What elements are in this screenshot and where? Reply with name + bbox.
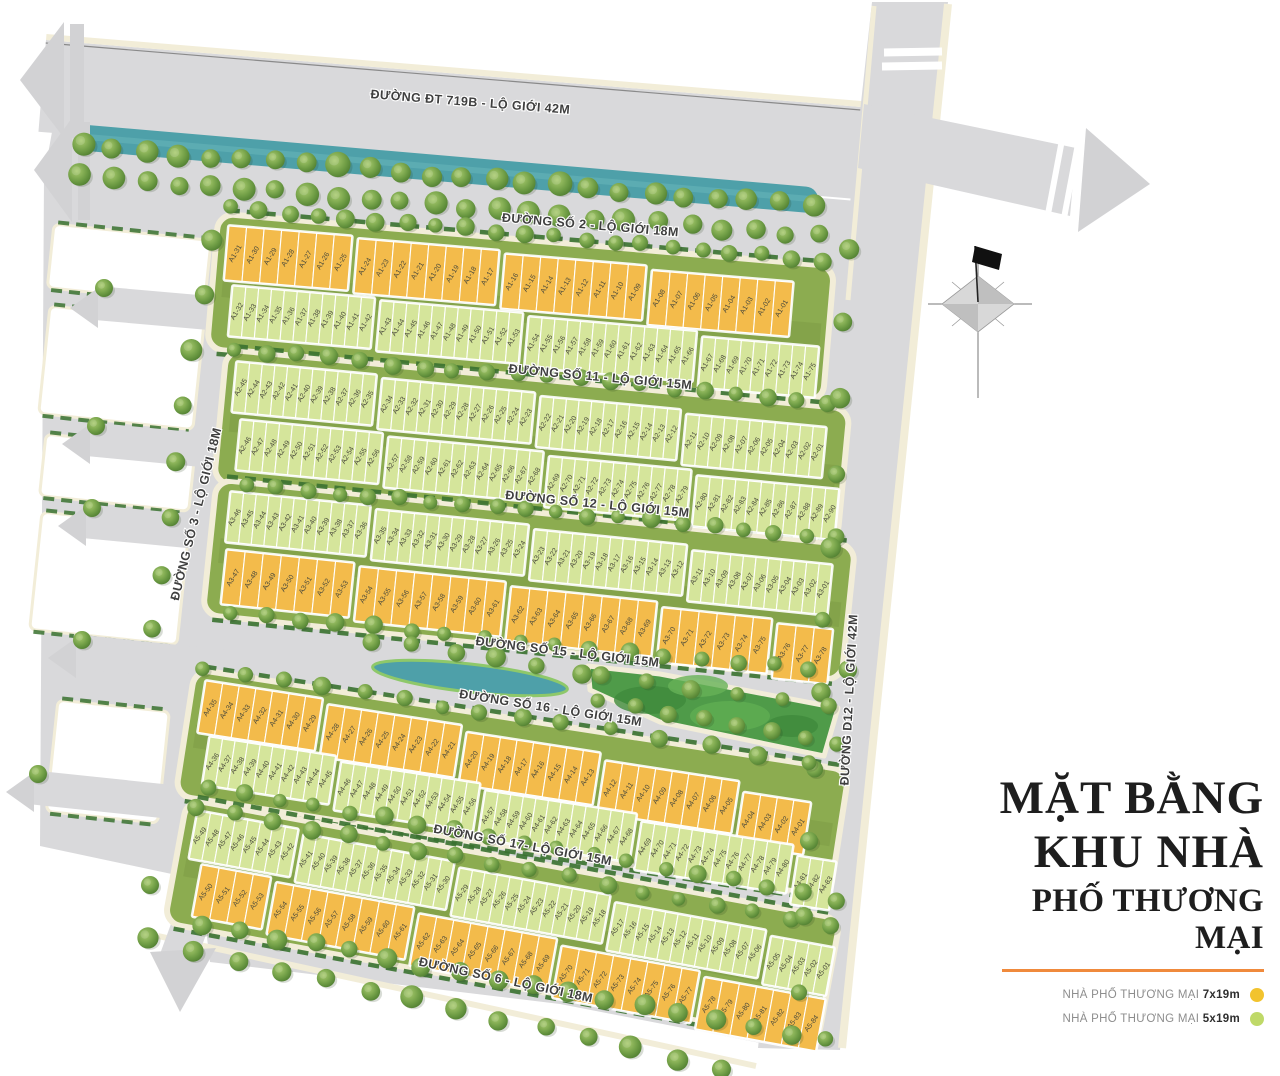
map-shape: [300, 155, 308, 163]
map-shape: [795, 883, 812, 900]
map-shape: [285, 208, 292, 215]
map-shape: [797, 910, 804, 917]
map-shape: [391, 489, 407, 505]
map-shape: [746, 220, 766, 240]
map-shape: [711, 192, 719, 200]
map-shape: [261, 348, 268, 355]
map-shape: [739, 191, 748, 200]
map-shape: [387, 359, 394, 366]
map-shape: [313, 210, 319, 216]
map-shape: [104, 141, 112, 149]
map-shape: [513, 171, 536, 194]
map-shape: [708, 189, 727, 208]
map-shape: [450, 647, 457, 654]
map-shape: [410, 818, 417, 825]
map-shape: [778, 694, 784, 700]
map-shape: [323, 349, 330, 356]
map-shape: [817, 614, 823, 620]
map-shape: [195, 285, 214, 304]
map-shape: [709, 1012, 717, 1020]
map-shape: [731, 389, 737, 395]
map-shape: [672, 892, 686, 906]
map-shape: [802, 755, 817, 770]
map-shape: [732, 689, 737, 694]
tree-icon: [141, 876, 161, 895]
map-shape: [200, 780, 216, 796]
map-shape: [428, 194, 437, 203]
map-shape: [258, 345, 276, 363]
map-shape: [268, 183, 275, 190]
map-shape: [335, 490, 341, 496]
lot-block: A1-67A1-68A1-69A1-70A1-71A1-72A1-73A1-74…: [696, 335, 820, 399]
map-shape: [745, 903, 760, 918]
map-shape: [183, 941, 204, 962]
map-shape: [823, 540, 831, 548]
map-shape: [800, 661, 816, 677]
map-shape: [76, 634, 83, 641]
map-shape: [791, 394, 797, 400]
map-shape: [195, 918, 203, 926]
map-shape: [673, 188, 693, 208]
map-shape: [491, 1014, 499, 1022]
map-shape: [776, 692, 790, 706]
plan-title-line1: MẶT BẰNG: [964, 772, 1264, 826]
map-shape: [192, 916, 212, 936]
map-shape: [170, 177, 188, 195]
map-shape: [788, 392, 804, 408]
map-shape: [478, 364, 495, 381]
map-shape: [394, 165, 402, 173]
map-shape: [311, 208, 326, 223]
map-shape: [689, 865, 707, 883]
map-shape: [365, 636, 372, 643]
map-shape: [303, 485, 309, 491]
map-shape: [619, 854, 633, 868]
map-shape: [396, 690, 412, 706]
map-shape: [747, 905, 753, 911]
map-shape: [660, 706, 677, 723]
map-shape: [313, 677, 332, 696]
map-shape: [278, 674, 284, 680]
map-shape: [32, 768, 39, 775]
map-shape: [749, 222, 757, 230]
map-shape: [754, 246, 769, 261]
map-shape: [169, 455, 177, 463]
map-shape: [823, 700, 830, 707]
map-shape: [540, 1020, 547, 1027]
map-shape: [73, 631, 91, 649]
map-shape: [363, 160, 371, 168]
map-shape: [239, 478, 254, 493]
map-shape: [519, 228, 526, 235]
map-shape: [95, 279, 113, 297]
map-shape: [445, 998, 466, 1019]
map-shape: [621, 856, 627, 862]
map-shape: [428, 218, 442, 232]
map-shape: [813, 227, 820, 234]
map-shape: [666, 240, 681, 255]
map-shape: [591, 693, 605, 707]
map-shape: [592, 666, 610, 684]
map-shape: [751, 749, 758, 756]
map-shape: [798, 731, 813, 746]
map-shape: [144, 879, 151, 886]
map-shape: [763, 722, 781, 740]
map-shape: [173, 180, 180, 187]
map-shape: [609, 183, 628, 202]
map-shape: [164, 511, 171, 518]
map-shape: [471, 704, 487, 720]
map-shape: [562, 867, 577, 882]
map-shape: [711, 899, 718, 906]
map-shape: [238, 667, 253, 682]
map-shape: [836, 315, 843, 322]
map-shape: [273, 794, 286, 807]
map-shape: [294, 615, 301, 622]
map-shape: [489, 650, 497, 658]
map-shape: [408, 816, 427, 835]
map-shape: [325, 152, 350, 177]
map-shape: [98, 282, 105, 289]
map-shape: [610, 238, 616, 244]
map-shape: [492, 501, 498, 507]
map-shape: [777, 227, 794, 244]
map-shape: [803, 194, 825, 216]
map-shape: [802, 531, 808, 537]
map-shape: [676, 190, 684, 198]
map-shape: [662, 708, 669, 715]
map-shape: [72, 166, 81, 175]
legend-dot-5x19-icon: [1250, 1012, 1264, 1026]
map-shape: [682, 680, 701, 699]
map-shape: [783, 250, 800, 267]
map-shape: [804, 757, 810, 763]
map-shape: [275, 965, 283, 973]
map-shape: [694, 652, 709, 667]
map-shape: [488, 224, 505, 241]
map-shape: [622, 1039, 631, 1048]
map-shape: [364, 616, 382, 634]
map-shape: [595, 669, 602, 676]
lot-block: A3-76A3-77A3-78: [770, 622, 834, 686]
map-shape: [582, 1030, 589, 1037]
map-shape: [619, 1035, 642, 1058]
map-shape: [638, 997, 646, 1005]
map-shape: [683, 214, 702, 233]
crosswalk: [882, 61, 942, 70]
map-shape: [327, 187, 350, 210]
map-shape: [141, 930, 149, 938]
map-shape: [250, 201, 268, 219]
map-shape: [814, 253, 832, 271]
map-shape: [369, 216, 377, 224]
map-shape: [306, 798, 320, 812]
map-shape: [438, 702, 443, 707]
map-shape: [729, 387, 743, 401]
map-shape: [266, 815, 273, 822]
map-shape: [715, 1062, 723, 1070]
map-shape: [842, 242, 850, 250]
map-shape: [360, 686, 366, 692]
map-shape: [516, 225, 534, 243]
map-shape: [671, 1006, 679, 1014]
map-shape: [634, 237, 640, 243]
map-shape: [696, 710, 712, 726]
map-shape: [425, 170, 433, 178]
map-shape: [531, 660, 538, 667]
map-shape: [551, 507, 556, 512]
map-shape: [336, 209, 355, 228]
map-shape: [830, 895, 837, 902]
map-shape: [820, 537, 841, 558]
map-shape: [362, 190, 382, 210]
map-shape: [404, 988, 413, 997]
map-shape: [653, 732, 660, 739]
map-shape: [599, 876, 617, 894]
map-shape: [326, 613, 345, 632]
map-shape: [362, 491, 369, 498]
map-shape: [345, 808, 351, 814]
map-shape: [317, 969, 335, 987]
map-shape: [639, 673, 655, 689]
map-shape: [481, 366, 488, 373]
north-compass: [928, 246, 1032, 398]
map-shape: [299, 186, 308, 195]
map-shape: [800, 733, 806, 739]
map-shape: [197, 664, 203, 670]
map-shape: [770, 191, 790, 211]
map-shape: [831, 739, 837, 745]
map-shape: [800, 832, 818, 850]
map-shape: [674, 894, 679, 899]
map-shape: [153, 566, 171, 584]
map-shape: [546, 228, 561, 243]
map-shape: [264, 812, 282, 830]
map-shape: [166, 452, 185, 471]
map-shape: [229, 952, 248, 971]
map-shape: [597, 993, 605, 1001]
map-shape: [231, 149, 250, 168]
map-shape: [765, 525, 781, 541]
map-shape: [358, 684, 373, 699]
map-shape: [402, 216, 409, 223]
map-shape: [375, 806, 394, 825]
map-shape: [785, 913, 792, 920]
map-shape: [204, 233, 212, 241]
map-shape: [698, 712, 705, 719]
map-shape: [456, 199, 476, 219]
map-shape: [329, 616, 336, 623]
map-shape: [424, 191, 447, 214]
map-shape: [393, 194, 400, 201]
map-shape: [400, 985, 423, 1008]
map-shape: [176, 399, 183, 406]
map-shape: [710, 519, 717, 526]
map-shape: [451, 167, 471, 187]
map-shape: [187, 799, 204, 816]
map-shape: [822, 917, 839, 934]
map-shape: [579, 233, 594, 248]
map-shape: [444, 363, 459, 378]
map-shape: [90, 420, 97, 427]
map-shape: [342, 806, 357, 821]
map-shape: [821, 397, 828, 404]
legend-label-7x19: NHÀ PHỐ THƯƠNG MẠI 7x19m: [1063, 989, 1241, 1001]
map-shape: [779, 229, 786, 236]
map-shape: [146, 622, 153, 629]
map-shape: [155, 569, 162, 576]
map-shape: [139, 143, 148, 152]
map-shape: [229, 345, 235, 351]
map-shape: [276, 672, 292, 688]
map-shape: [391, 192, 409, 210]
map-shape: [200, 175, 221, 196]
map-shape: [782, 1025, 801, 1044]
map-shape: [267, 479, 283, 495]
map-shape: [267, 930, 288, 951]
map-shape: [282, 206, 299, 223]
map-shape: [137, 927, 158, 948]
map-shape: [419, 362, 426, 369]
map-shape: [628, 698, 644, 714]
map-shape: [828, 892, 845, 909]
map-shape: [773, 194, 781, 202]
map-shape: [637, 887, 643, 893]
map-shape: [270, 481, 276, 487]
map-shape: [174, 397, 192, 415]
map-shape: [580, 1028, 598, 1046]
map-shape: [564, 869, 570, 875]
map-shape: [551, 175, 561, 185]
map-shape: [103, 167, 126, 190]
map-shape: [236, 784, 253, 801]
map-shape: [707, 517, 723, 533]
map-shape: [830, 388, 850, 408]
map-shape: [821, 698, 837, 714]
map-shape: [366, 213, 385, 232]
map-shape: [184, 342, 193, 351]
map-shape: [399, 214, 416, 231]
map-shape: [83, 499, 101, 517]
map-shape: [232, 955, 240, 963]
map-shape: [377, 948, 397, 968]
map-shape: [380, 951, 388, 959]
map-shape: [136, 140, 159, 163]
map-shape: [641, 675, 647, 681]
map-shape: [830, 468, 837, 475]
map-shape: [266, 150, 285, 169]
map-shape: [745, 1019, 761, 1035]
map-shape: [709, 897, 726, 914]
map-shape: [490, 498, 506, 514]
map-shape: [320, 347, 338, 365]
map-shape: [645, 182, 667, 204]
map-shape: [297, 152, 317, 172]
map-shape: [240, 669, 246, 675]
map-shape: [492, 200, 501, 209]
map-shape: [363, 633, 381, 651]
road-arrow-icon: [1078, 128, 1150, 232]
map-shape: [517, 711, 524, 718]
map-shape: [425, 497, 431, 503]
map-shape: [399, 692, 406, 699]
map-shape: [231, 921, 249, 939]
map-shape: [272, 962, 291, 981]
map-shape: [728, 717, 745, 734]
map-shape: [456, 217, 474, 235]
map-shape: [138, 171, 158, 191]
map-shape: [736, 522, 751, 537]
map-shape: [699, 384, 706, 391]
map-shape: [575, 667, 583, 675]
map-shape: [595, 990, 614, 1009]
map-shape: [830, 531, 837, 538]
map-shape: [412, 845, 419, 852]
legend-item-5x19: NHÀ PHỐ THƯƠNG MẠI 5x19m: [964, 1012, 1264, 1026]
map-shape: [803, 834, 810, 841]
map-shape: [767, 656, 782, 671]
legend-item-7x19: NHÀ PHỐ THƯƠNG MẠI 7x19m: [964, 988, 1264, 1002]
map-shape: [180, 339, 202, 361]
map-shape: [828, 465, 845, 482]
map-shape: [266, 180, 284, 198]
map-shape: [270, 933, 278, 941]
lot-block: A1-31A1-30A1-29A1-28A1-27A1-26A1-25: [222, 224, 354, 292]
legend-dot-7x19-icon: [1250, 988, 1264, 1002]
map-shape: [430, 220, 436, 226]
map-shape: [204, 152, 211, 159]
map-shape: [340, 825, 358, 843]
map-shape: [454, 170, 462, 178]
tree-icon: [400, 985, 425, 1009]
map-shape: [141, 876, 159, 894]
map-shape: [162, 509, 180, 527]
map-shape: [759, 389, 777, 407]
map-shape: [806, 197, 815, 206]
map-shape: [816, 255, 823, 262]
map-shape: [203, 782, 209, 788]
map-shape: [307, 933, 325, 951]
road-arrow-icon: [6, 772, 34, 812]
master-plan-canvas: A1-31A1-30A1-29A1-28A1-27A1-26A1-25A1-24…: [0, 0, 1280, 1076]
map-shape: [454, 496, 470, 512]
map-shape: [698, 245, 704, 251]
map-shape: [650, 730, 668, 748]
map-shape: [449, 849, 456, 856]
map-shape: [667, 1049, 688, 1070]
map-shape: [310, 936, 317, 943]
map-shape: [367, 618, 374, 625]
map-shape: [225, 608, 231, 614]
map-shape: [417, 360, 434, 377]
map-shape: [785, 1028, 793, 1036]
map-shape: [141, 174, 149, 182]
map-shape: [766, 725, 773, 732]
map-shape: [735, 188, 757, 210]
map-shape: [72, 133, 95, 156]
map-shape: [791, 984, 807, 1000]
map-shape: [308, 799, 313, 804]
map-shape: [684, 683, 691, 690]
map-shape: [203, 178, 211, 186]
map-shape: [29, 765, 47, 783]
map-shape: [459, 220, 466, 227]
plan-title-line3: PHỐ THƯƠNG MẠI: [964, 883, 1264, 957]
map-shape: [447, 847, 463, 863]
map-shape: [343, 943, 350, 950]
map-shape: [333, 488, 347, 502]
map-shape: [581, 511, 588, 518]
